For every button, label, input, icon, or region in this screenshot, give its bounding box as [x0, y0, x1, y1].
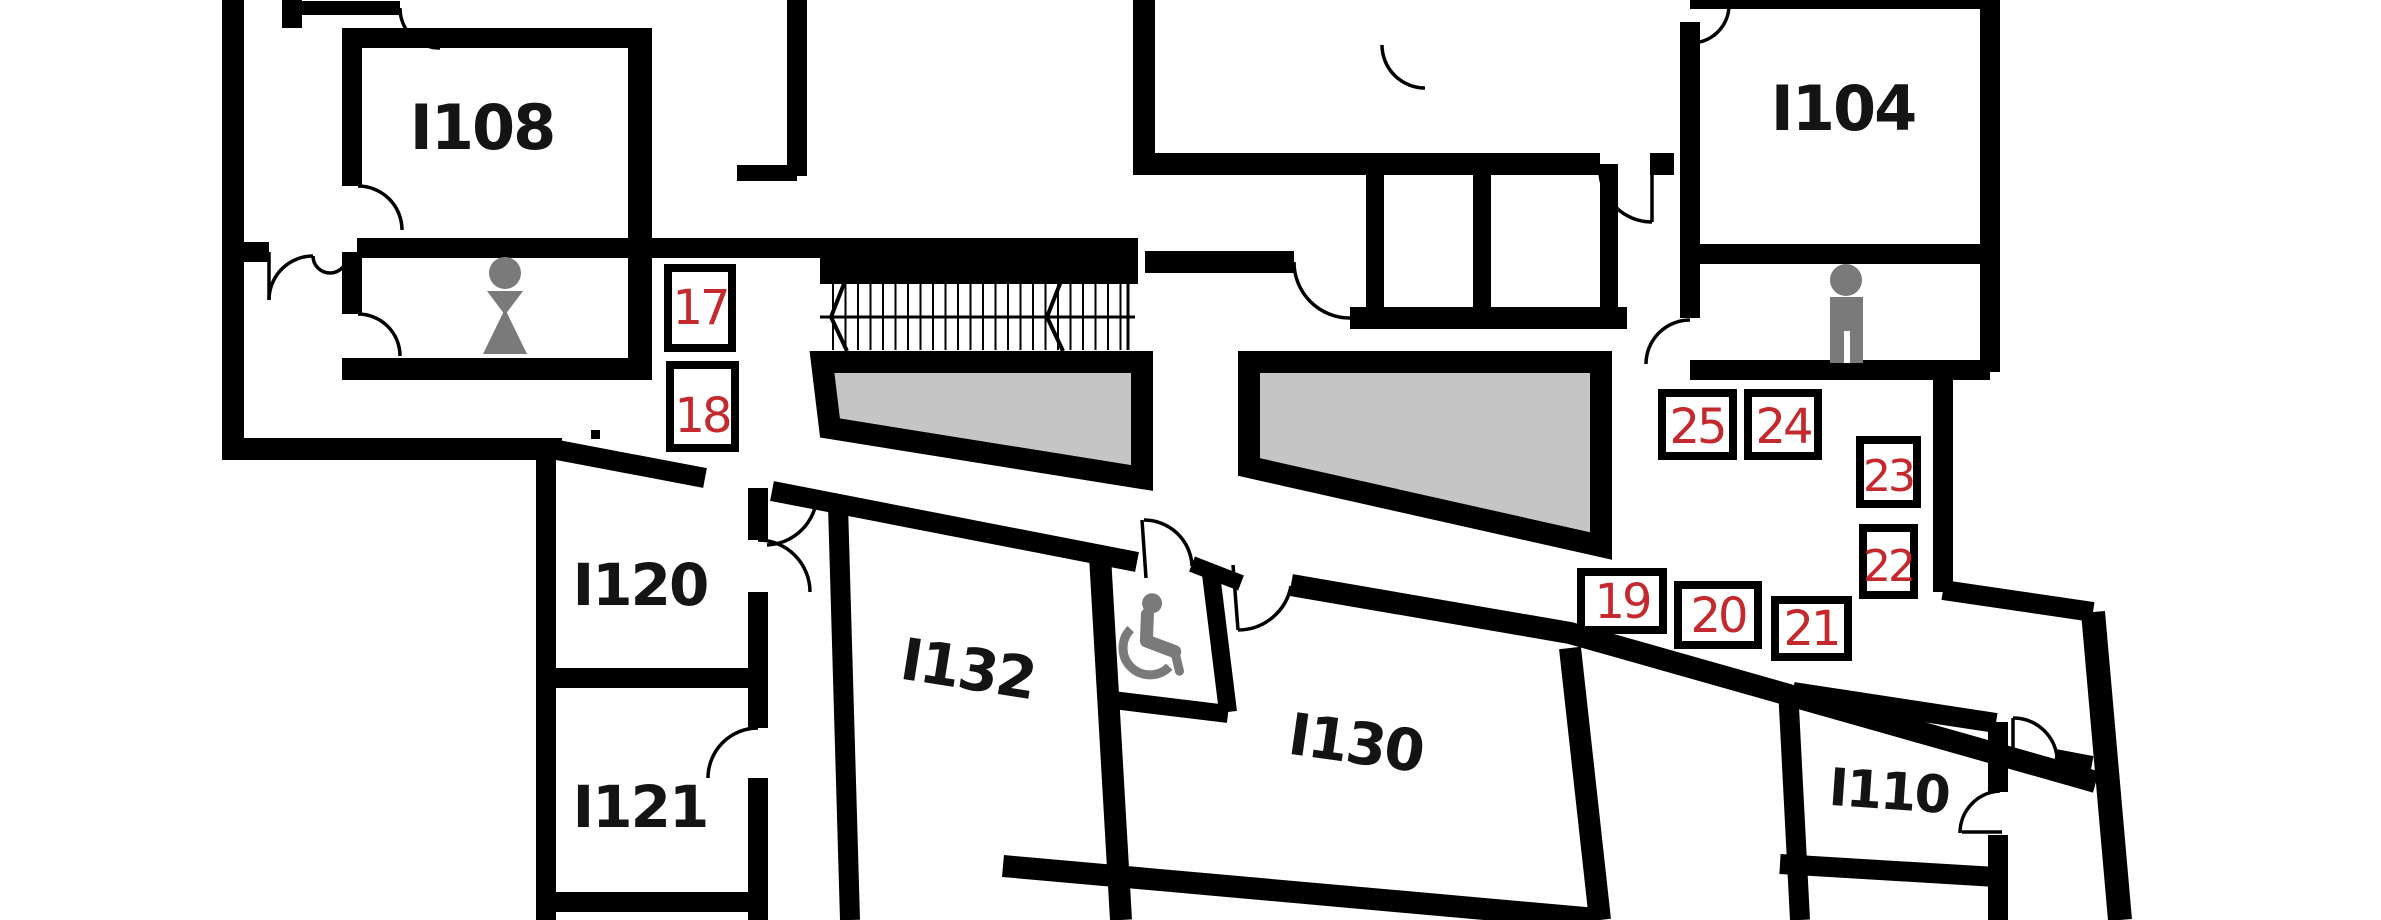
male-restroom-icon — [1830, 264, 1863, 363]
room-label-i132: I132 — [896, 625, 1040, 713]
room-label-i110: I110 — [1827, 758, 1951, 826]
room-label-i130: I130 — [1284, 700, 1427, 786]
marker-24[interactable]: 24 — [1748, 393, 1818, 456]
marker-18-number: 18 — [674, 388, 730, 444]
room-label-i104: I104 — [1771, 72, 1916, 145]
marker-24-number: 24 — [1755, 399, 1811, 455]
marker-17[interactable]: 17 — [668, 268, 732, 348]
marker-21-number: 21 — [1783, 601, 1838, 657]
shaded-ramp-area-2 — [1249, 362, 1601, 546]
marker-21[interactable]: 21 — [1775, 600, 1848, 657]
marker-25[interactable]: 25 — [1662, 393, 1733, 456]
wheelchair-accessible-icon — [1118, 589, 1196, 682]
marker-22-number: 22 — [1863, 541, 1913, 592]
marker-17-number: 17 — [672, 280, 727, 336]
stairs — [820, 272, 1135, 351]
floor-plan-canvas: I108 I104 I120 I121 I132 I130 I110 17 18… — [0, 0, 2381, 920]
marker-20[interactable]: 20 — [1678, 585, 1758, 645]
shaded-ramp-area-1 — [822, 362, 1142, 478]
marker-18[interactable]: 18 — [670, 365, 735, 448]
room-label-i121: I121 — [573, 773, 708, 841]
marker-25-number: 25 — [1669, 399, 1724, 455]
plan-dot — [591, 430, 600, 439]
room-label-i120: I120 — [573, 551, 708, 619]
marker-20-number: 20 — [1690, 588, 1746, 644]
marker-22[interactable]: 22 — [1863, 528, 1914, 595]
floor-plan-page: I108 I104 I120 I121 I132 I130 I110 17 18… — [0, 0, 2381, 920]
room-label-i108: I108 — [410, 91, 555, 164]
female-restroom-icon — [483, 257, 527, 354]
marker-19[interactable]: 19 — [1581, 572, 1663, 630]
marker-23-number: 23 — [1863, 451, 1913, 502]
marker-23[interactable]: 23 — [1860, 440, 1917, 504]
marker-19-number: 19 — [1594, 574, 1650, 630]
